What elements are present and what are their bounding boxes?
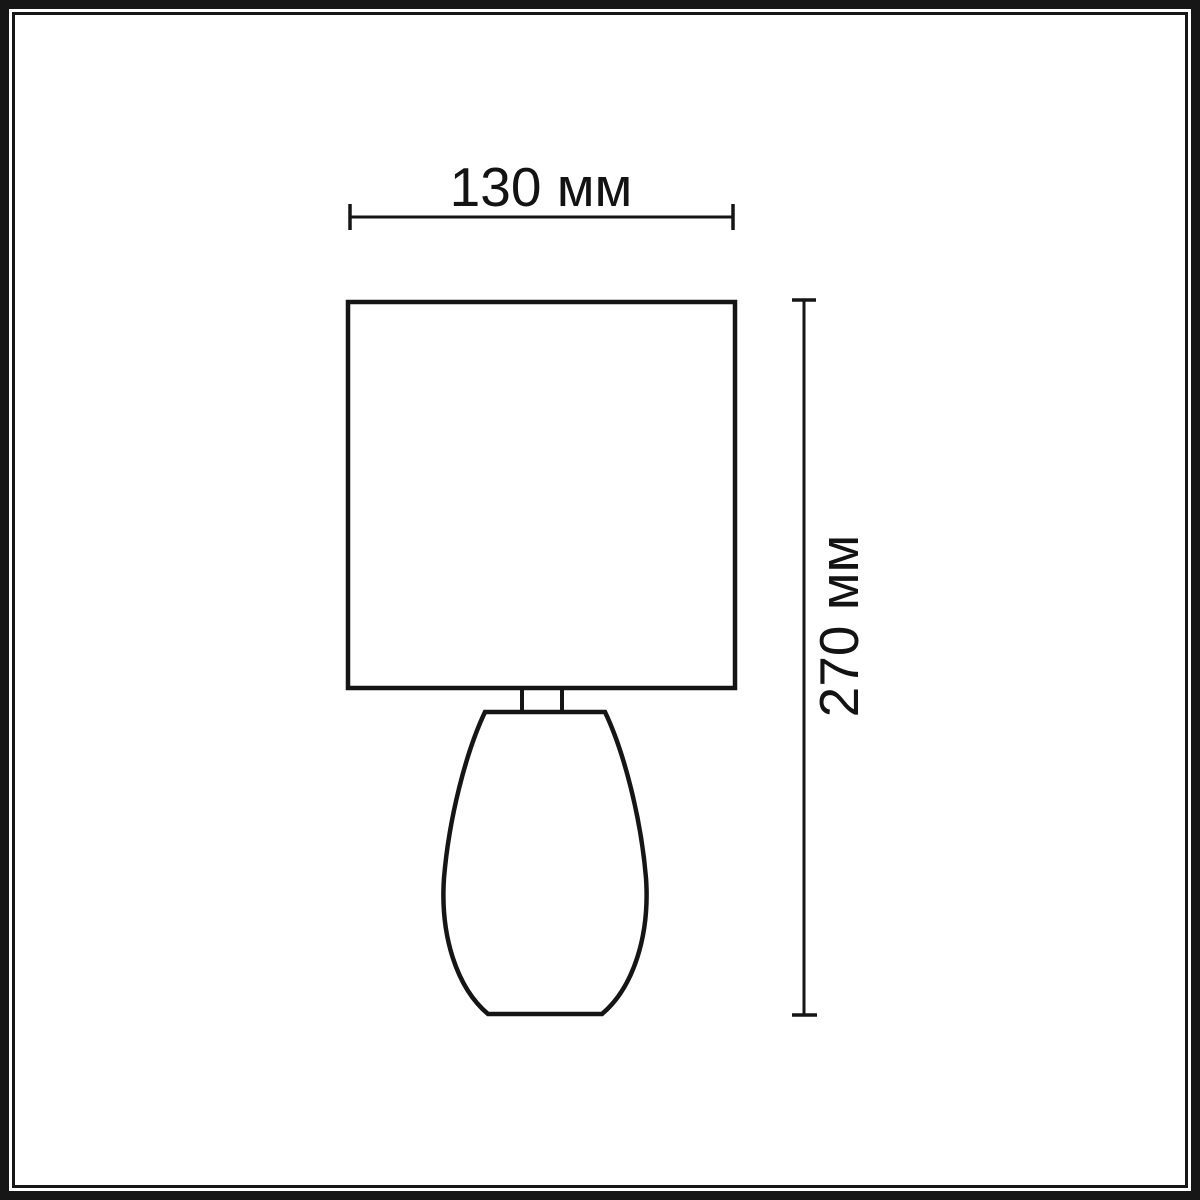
lamp-dimension-drawing: 130 мм 270 мм (0, 0, 1200, 1200)
diagram-canvas: 130 мм 270 мм (0, 0, 1200, 1200)
lamp-base-outline (443, 712, 646, 1014)
lamp-neck-outline (522, 688, 562, 712)
height-dimension-label: 270 мм (808, 535, 870, 718)
height-dimension: 270 мм (792, 300, 870, 1015)
width-dimension-label: 130 мм (450, 156, 633, 218)
width-dimension: 130 мм (350, 156, 733, 230)
lamp-shade-outline (348, 302, 735, 688)
